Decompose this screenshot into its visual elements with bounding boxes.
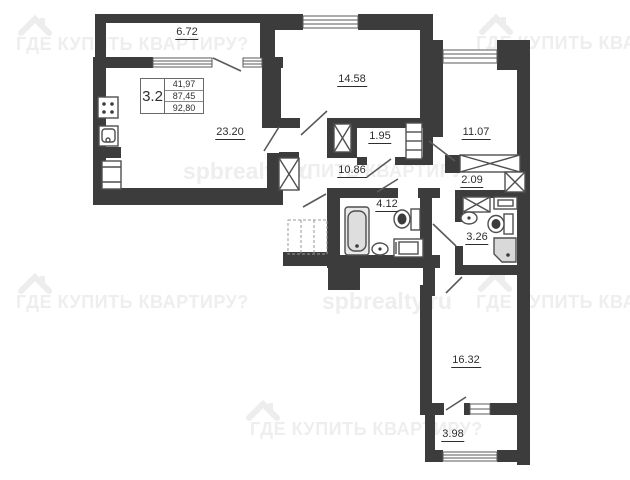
corner-shower-icon (494, 238, 516, 262)
toilet-icon (394, 209, 420, 230)
door-icon (446, 277, 462, 293)
toilet-icon (488, 214, 513, 234)
room-area-label: 6.72 (175, 26, 198, 40)
door-icon (433, 224, 456, 246)
shelf-rack-icon (406, 123, 422, 159)
wardrobe-icon (279, 158, 299, 190)
door-icon (367, 159, 391, 177)
bathroom-sink-icon (372, 243, 388, 255)
area-overall-value: 92,80 (165, 102, 203, 113)
area-total-value: 87,45 (165, 91, 203, 103)
washing-machine-icon (394, 239, 423, 257)
window-icon (303, 16, 358, 28)
kitchen-sink-icon (99, 126, 118, 146)
window-icon (443, 50, 497, 63)
room-area-label: 3.98 (441, 428, 464, 442)
apartment-type-label: 3.2 (141, 79, 165, 113)
wardrobe-icon (505, 172, 525, 192)
stove-icon (98, 97, 118, 118)
wardrobe-icon (463, 197, 490, 212)
bathroom-sink-icon (461, 212, 477, 224)
cabinet-icon (494, 197, 517, 209)
room-area-label: 1.95 (368, 130, 391, 144)
floor-plan-drawing (0, 0, 630, 480)
room-area-label: 2.09 (460, 174, 483, 188)
door-icon (213, 58, 241, 71)
door-icon (446, 397, 466, 410)
door-icon (303, 194, 326, 207)
fridge-icon (102, 161, 121, 189)
room-area-label: 14.58 (337, 73, 367, 87)
window-icon (470, 404, 490, 414)
door-icon (301, 111, 327, 135)
room-area-label: 16.32 (451, 354, 481, 368)
wardrobe-icon (460, 155, 520, 172)
room-area-label: 23.20 (215, 126, 245, 140)
room-area-label: 11.07 (462, 126, 491, 140)
windows (153, 16, 497, 461)
dashed-wardrobe-icon (288, 220, 327, 254)
window-icon (153, 58, 212, 67)
wardrobe-icon (334, 124, 351, 152)
bathtub-icon (345, 207, 369, 255)
area-living-value: 41,97 (165, 79, 203, 91)
window-icon (243, 58, 262, 67)
apartment-info-box: 3.2 41,97 87,45 92,80 (140, 78, 204, 114)
room-area-label: 4.12 (375, 198, 398, 212)
floor-plan-canvas: ГДЕ КУПИТЬ КВАРТИРУ? ГДЕ КУПИТЬ КВАРТИРУ… (0, 0, 630, 480)
room-area-label: 3.26 (465, 231, 488, 245)
room-area-label: 10.86 (337, 164, 367, 178)
door-icon (264, 127, 279, 151)
window-icon (443, 452, 497, 461)
